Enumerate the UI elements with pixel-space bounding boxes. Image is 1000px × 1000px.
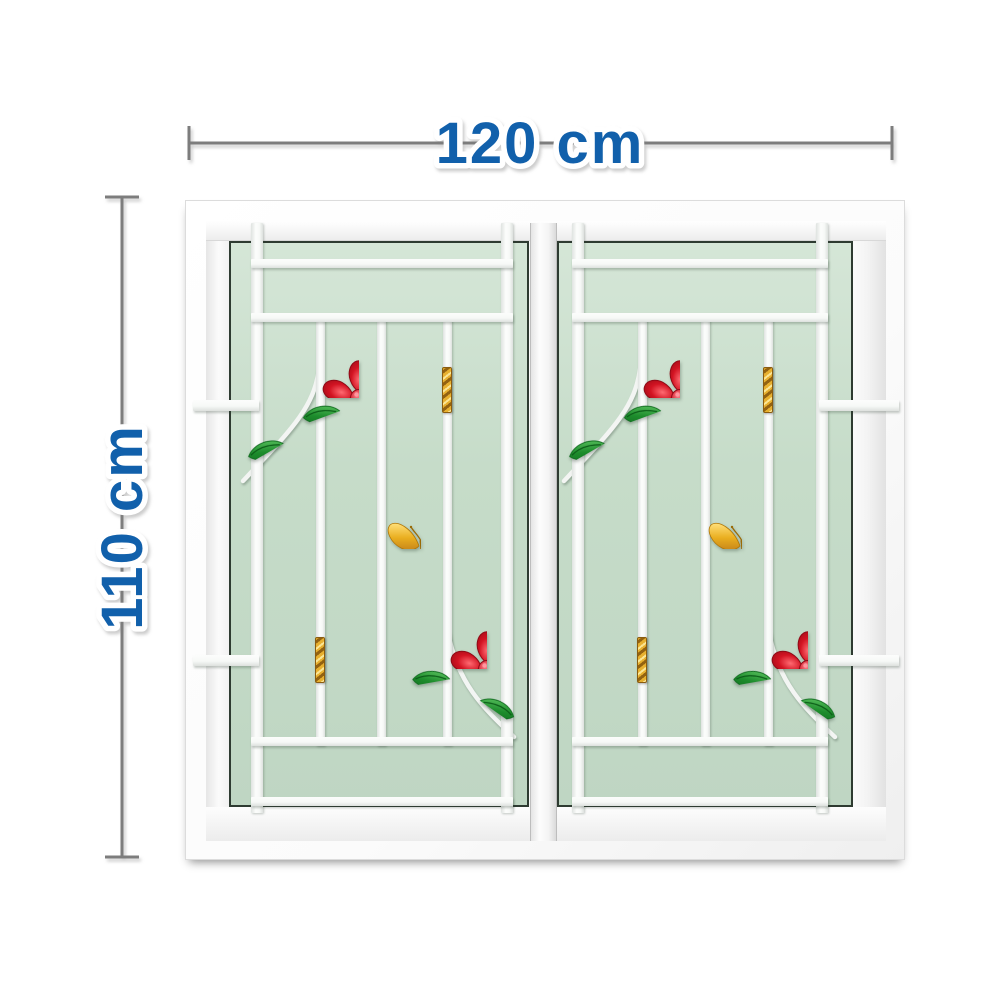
window-frame [185, 200, 905, 860]
grille-bar [251, 259, 513, 268]
gold-butterfly-icon [674, 489, 742, 549]
grille-bar [572, 797, 828, 806]
grille-bar [816, 223, 828, 813]
grille-bar [193, 400, 259, 411]
grille-bar [193, 655, 259, 666]
height-dimension: 110 cm [78, 192, 173, 872]
grille-bar [251, 797, 513, 806]
grille-bar [819, 655, 899, 666]
width-dimension-tick-right [891, 126, 894, 160]
stem-overlay [186, 201, 906, 861]
width-dimension-tick-left [188, 126, 191, 160]
red-flower-icon [728, 589, 808, 669]
gold-twist-icon [315, 637, 325, 683]
red-flower-icon [600, 318, 680, 398]
grille-bar [501, 223, 513, 813]
grille-bar [251, 223, 263, 813]
width-dimension: 120 cm [165, 100, 915, 195]
gold-twist-icon [637, 637, 647, 683]
grille-bar [251, 737, 513, 746]
gold-twist-icon [442, 367, 452, 413]
grille-bar [819, 400, 899, 411]
grille-bar [572, 737, 828, 746]
height-dimension-tick-top [105, 196, 139, 199]
gold-twist-icon [763, 367, 773, 413]
gold-butterfly-icon [353, 489, 421, 549]
width-label: 120 cm [436, 111, 645, 176]
grille-bar [572, 223, 584, 813]
height-label: 110 cm [90, 424, 155, 630]
grille-bar [572, 259, 828, 268]
red-flower-icon [279, 318, 359, 398]
height-dimension-tick-bottom [105, 856, 139, 859]
red-flower-icon [407, 589, 487, 669]
product-dimension-diagram: 120 cm 110 cm [0, 0, 1000, 1000]
